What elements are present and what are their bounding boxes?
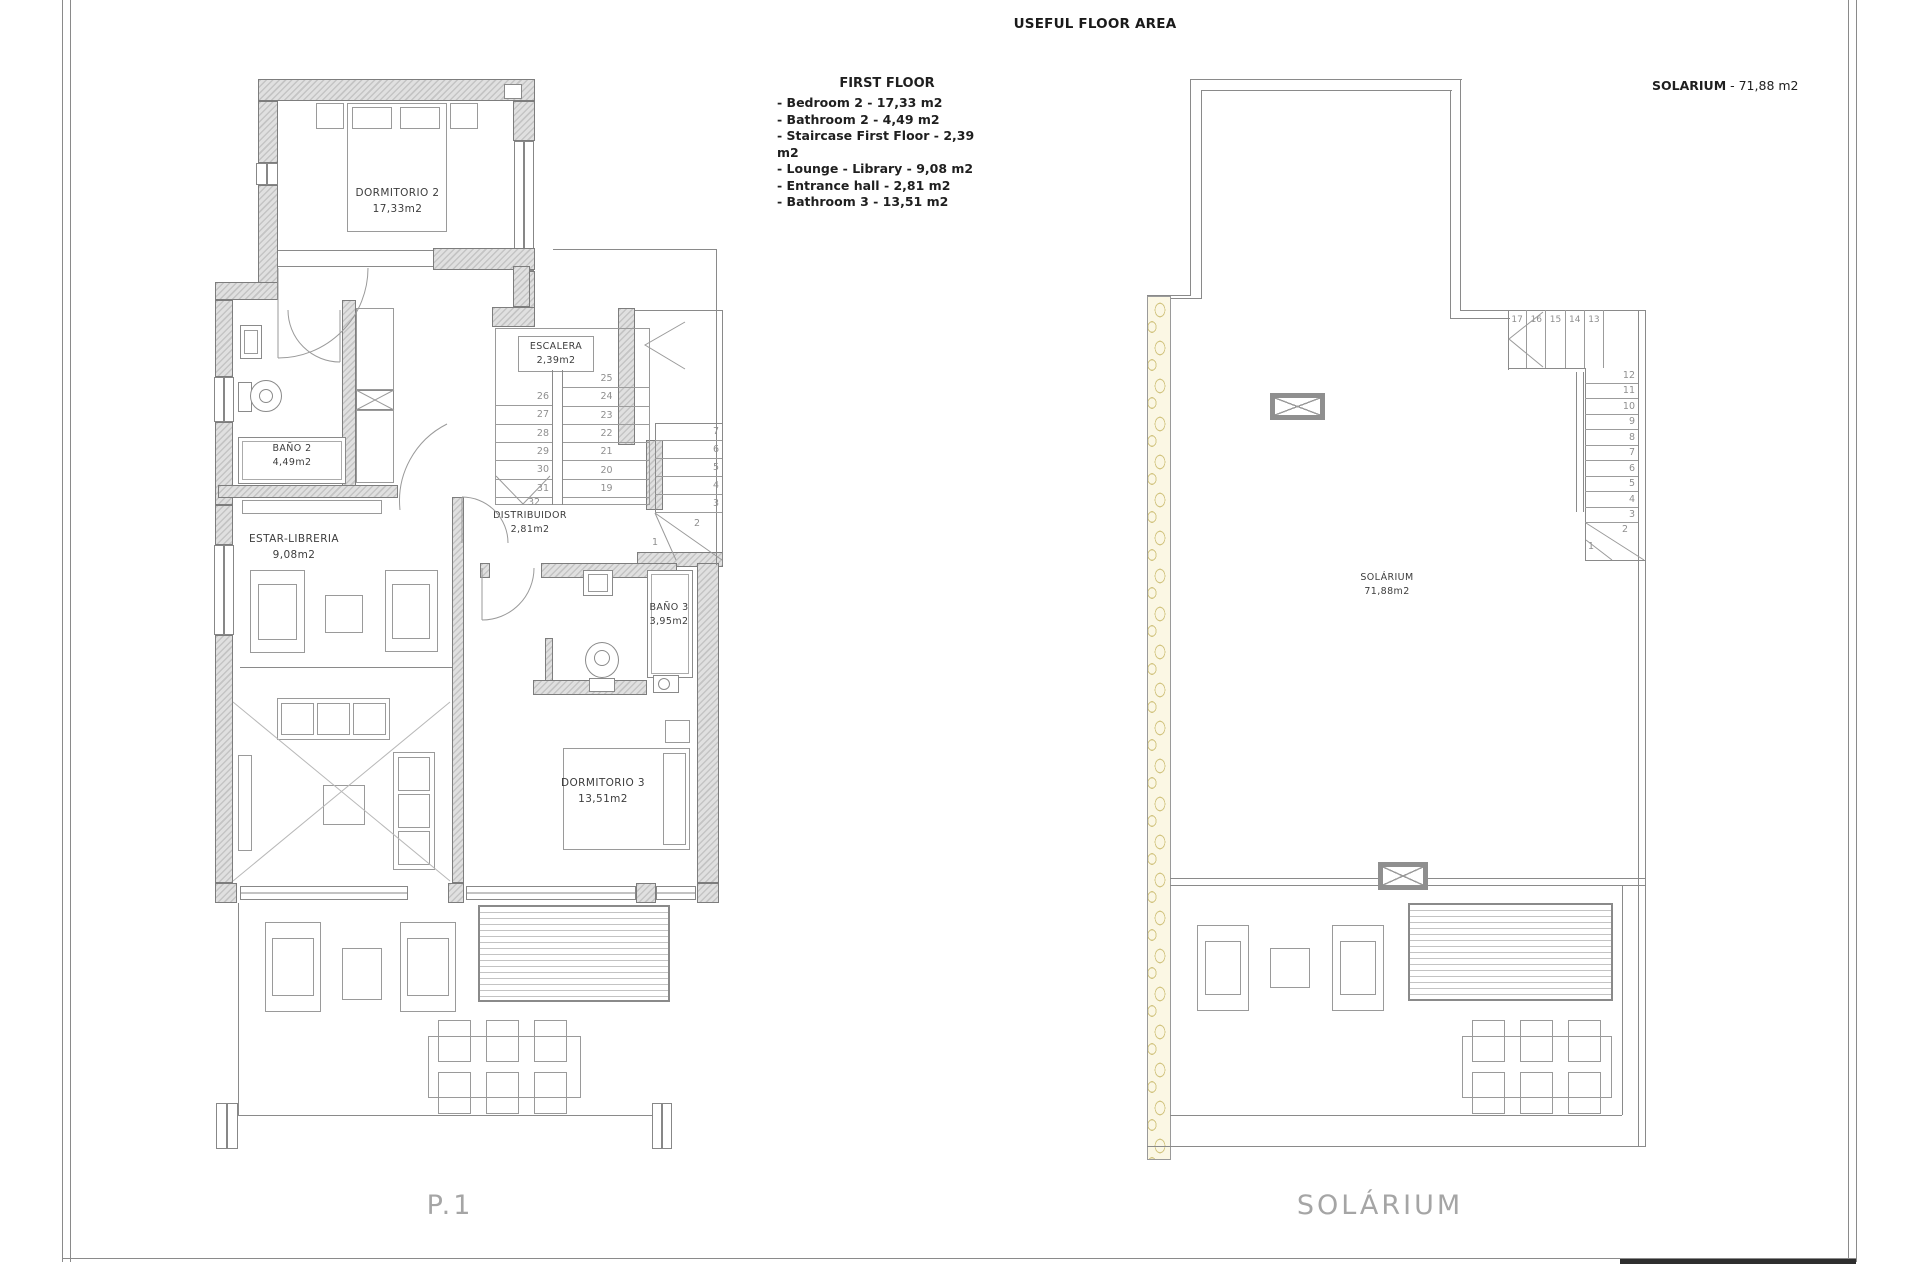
stair-winders [356, 312, 1644, 560]
linework-overlay [0, 0, 1920, 1280]
door-arcs [278, 268, 534, 620]
plan-caption-solarium: SOLÁRIUM [1255, 1190, 1505, 1221]
drawing-sheet: USEFUL FLOOR AREA FIRST FLOOR - Bedroom … [0, 0, 1920, 1280]
void-cross [233, 702, 450, 881]
plan-caption-p1: P.1 [380, 1190, 520, 1221]
